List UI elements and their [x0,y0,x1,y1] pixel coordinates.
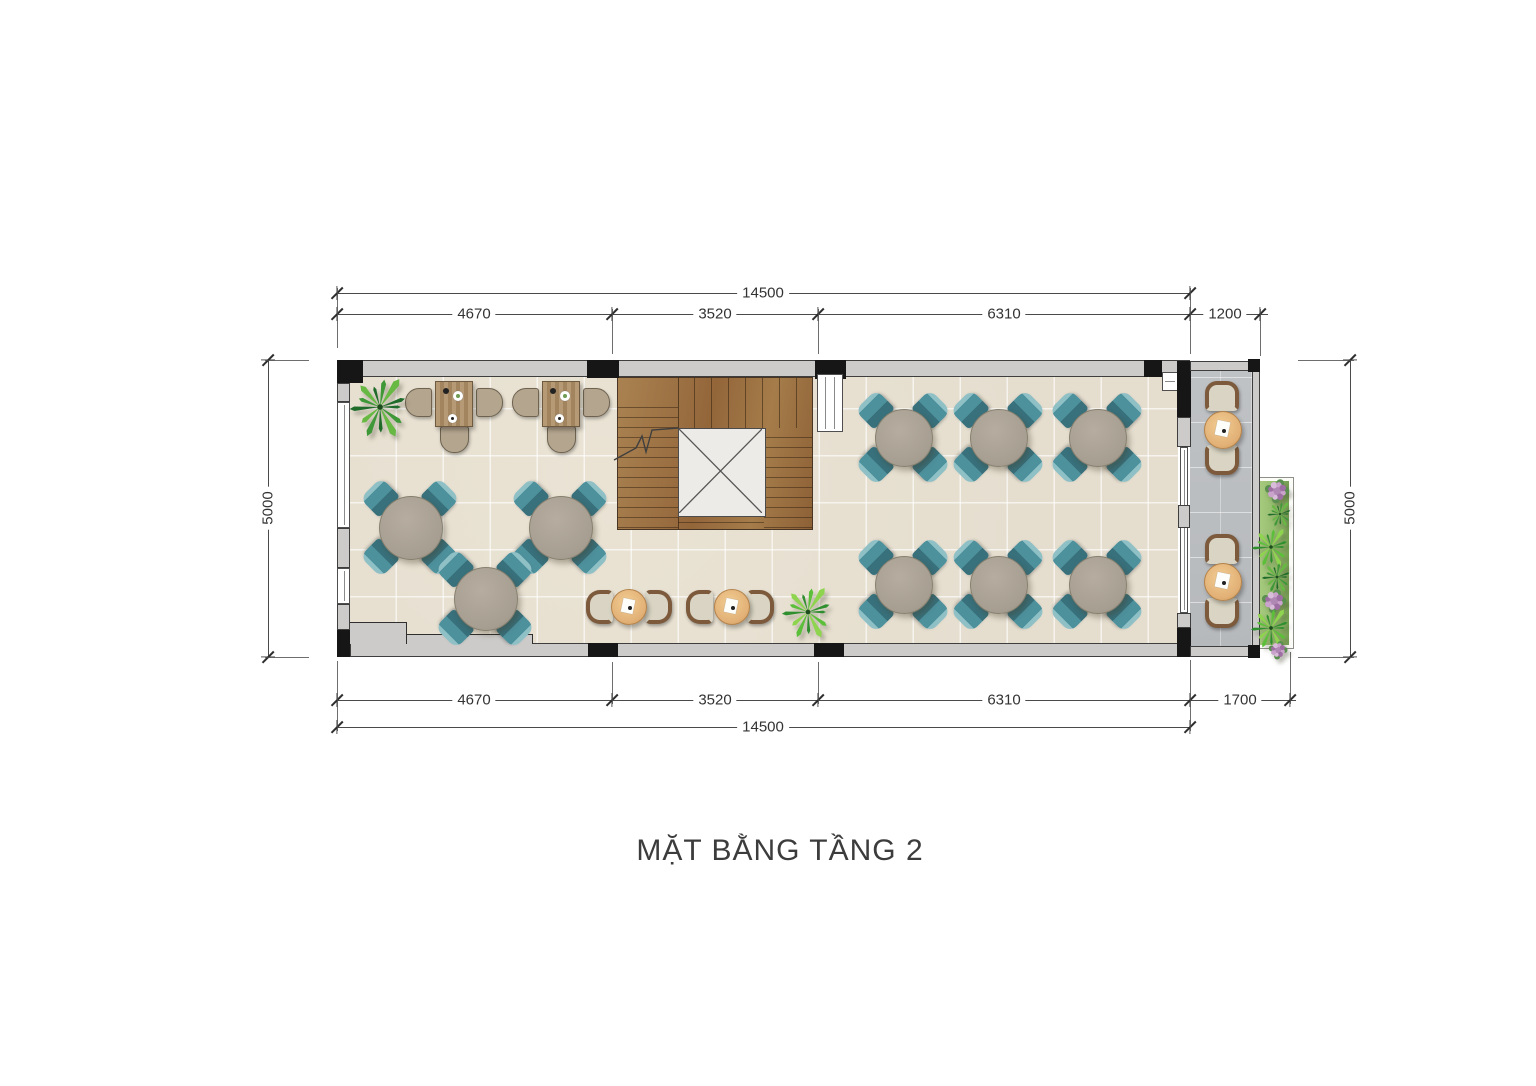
extension-line [265,360,309,361]
dining-table [875,556,933,614]
dining-table [970,409,1028,467]
dining-table [1069,556,1127,614]
extension-line [1190,288,1191,354]
dim-label-bottom-1: 4670 [452,692,495,709]
dining-table [529,496,593,560]
extension-line [1298,657,1354,658]
dining-table [379,496,443,560]
dim-label-top-1: 4670 [452,306,495,323]
desk [435,381,473,427]
coffee-table [611,589,647,625]
plant-fern-icon [344,371,416,443]
plant-flowers-icon [1268,640,1288,660]
dim-label-top-3: 6310 [982,306,1025,323]
extension-line [337,661,338,731]
dim-label-top-total: 14500 [737,285,789,302]
dining-table [1069,409,1127,467]
extension-line [1260,309,1261,356]
extension-line [337,288,338,348]
dim-label-top-2: 3520 [693,306,736,323]
extension-line [818,309,819,354]
extension-line [265,657,309,658]
dim-label-bottom-3: 6310 [982,692,1025,709]
dim-label-right-height: 5000 [1342,486,1359,529]
extension-line [1190,660,1191,731]
plant-fern-icon [777,581,839,643]
dining-table [454,567,518,631]
dim-label-bottom-4: 1700 [1218,692,1261,709]
dim-label-bottom-2: 3520 [693,692,736,709]
extension-line [1290,652,1291,704]
dim-label-left-height: 5000 [260,486,277,529]
extension-line [818,662,819,704]
floor-plan-canvas: 14500 4670 3520 6310 1200 4670 3520 6310… [0,0,1536,1086]
extension-line [612,662,613,704]
plan-title: MẶT BẰNG TẦNG 2 [636,834,923,868]
dim-label-top-4: 1200 [1203,306,1246,323]
desk [542,381,580,427]
dining-table [970,556,1028,614]
balcony-table [1204,563,1242,601]
dim-label-bottom-total: 14500 [737,719,789,736]
extension-line [612,309,613,354]
coffee-table [714,589,750,625]
dimension-layer [0,0,1536,1086]
balcony-table [1204,411,1242,449]
dining-table [875,409,933,467]
extension-line [1298,360,1354,361]
